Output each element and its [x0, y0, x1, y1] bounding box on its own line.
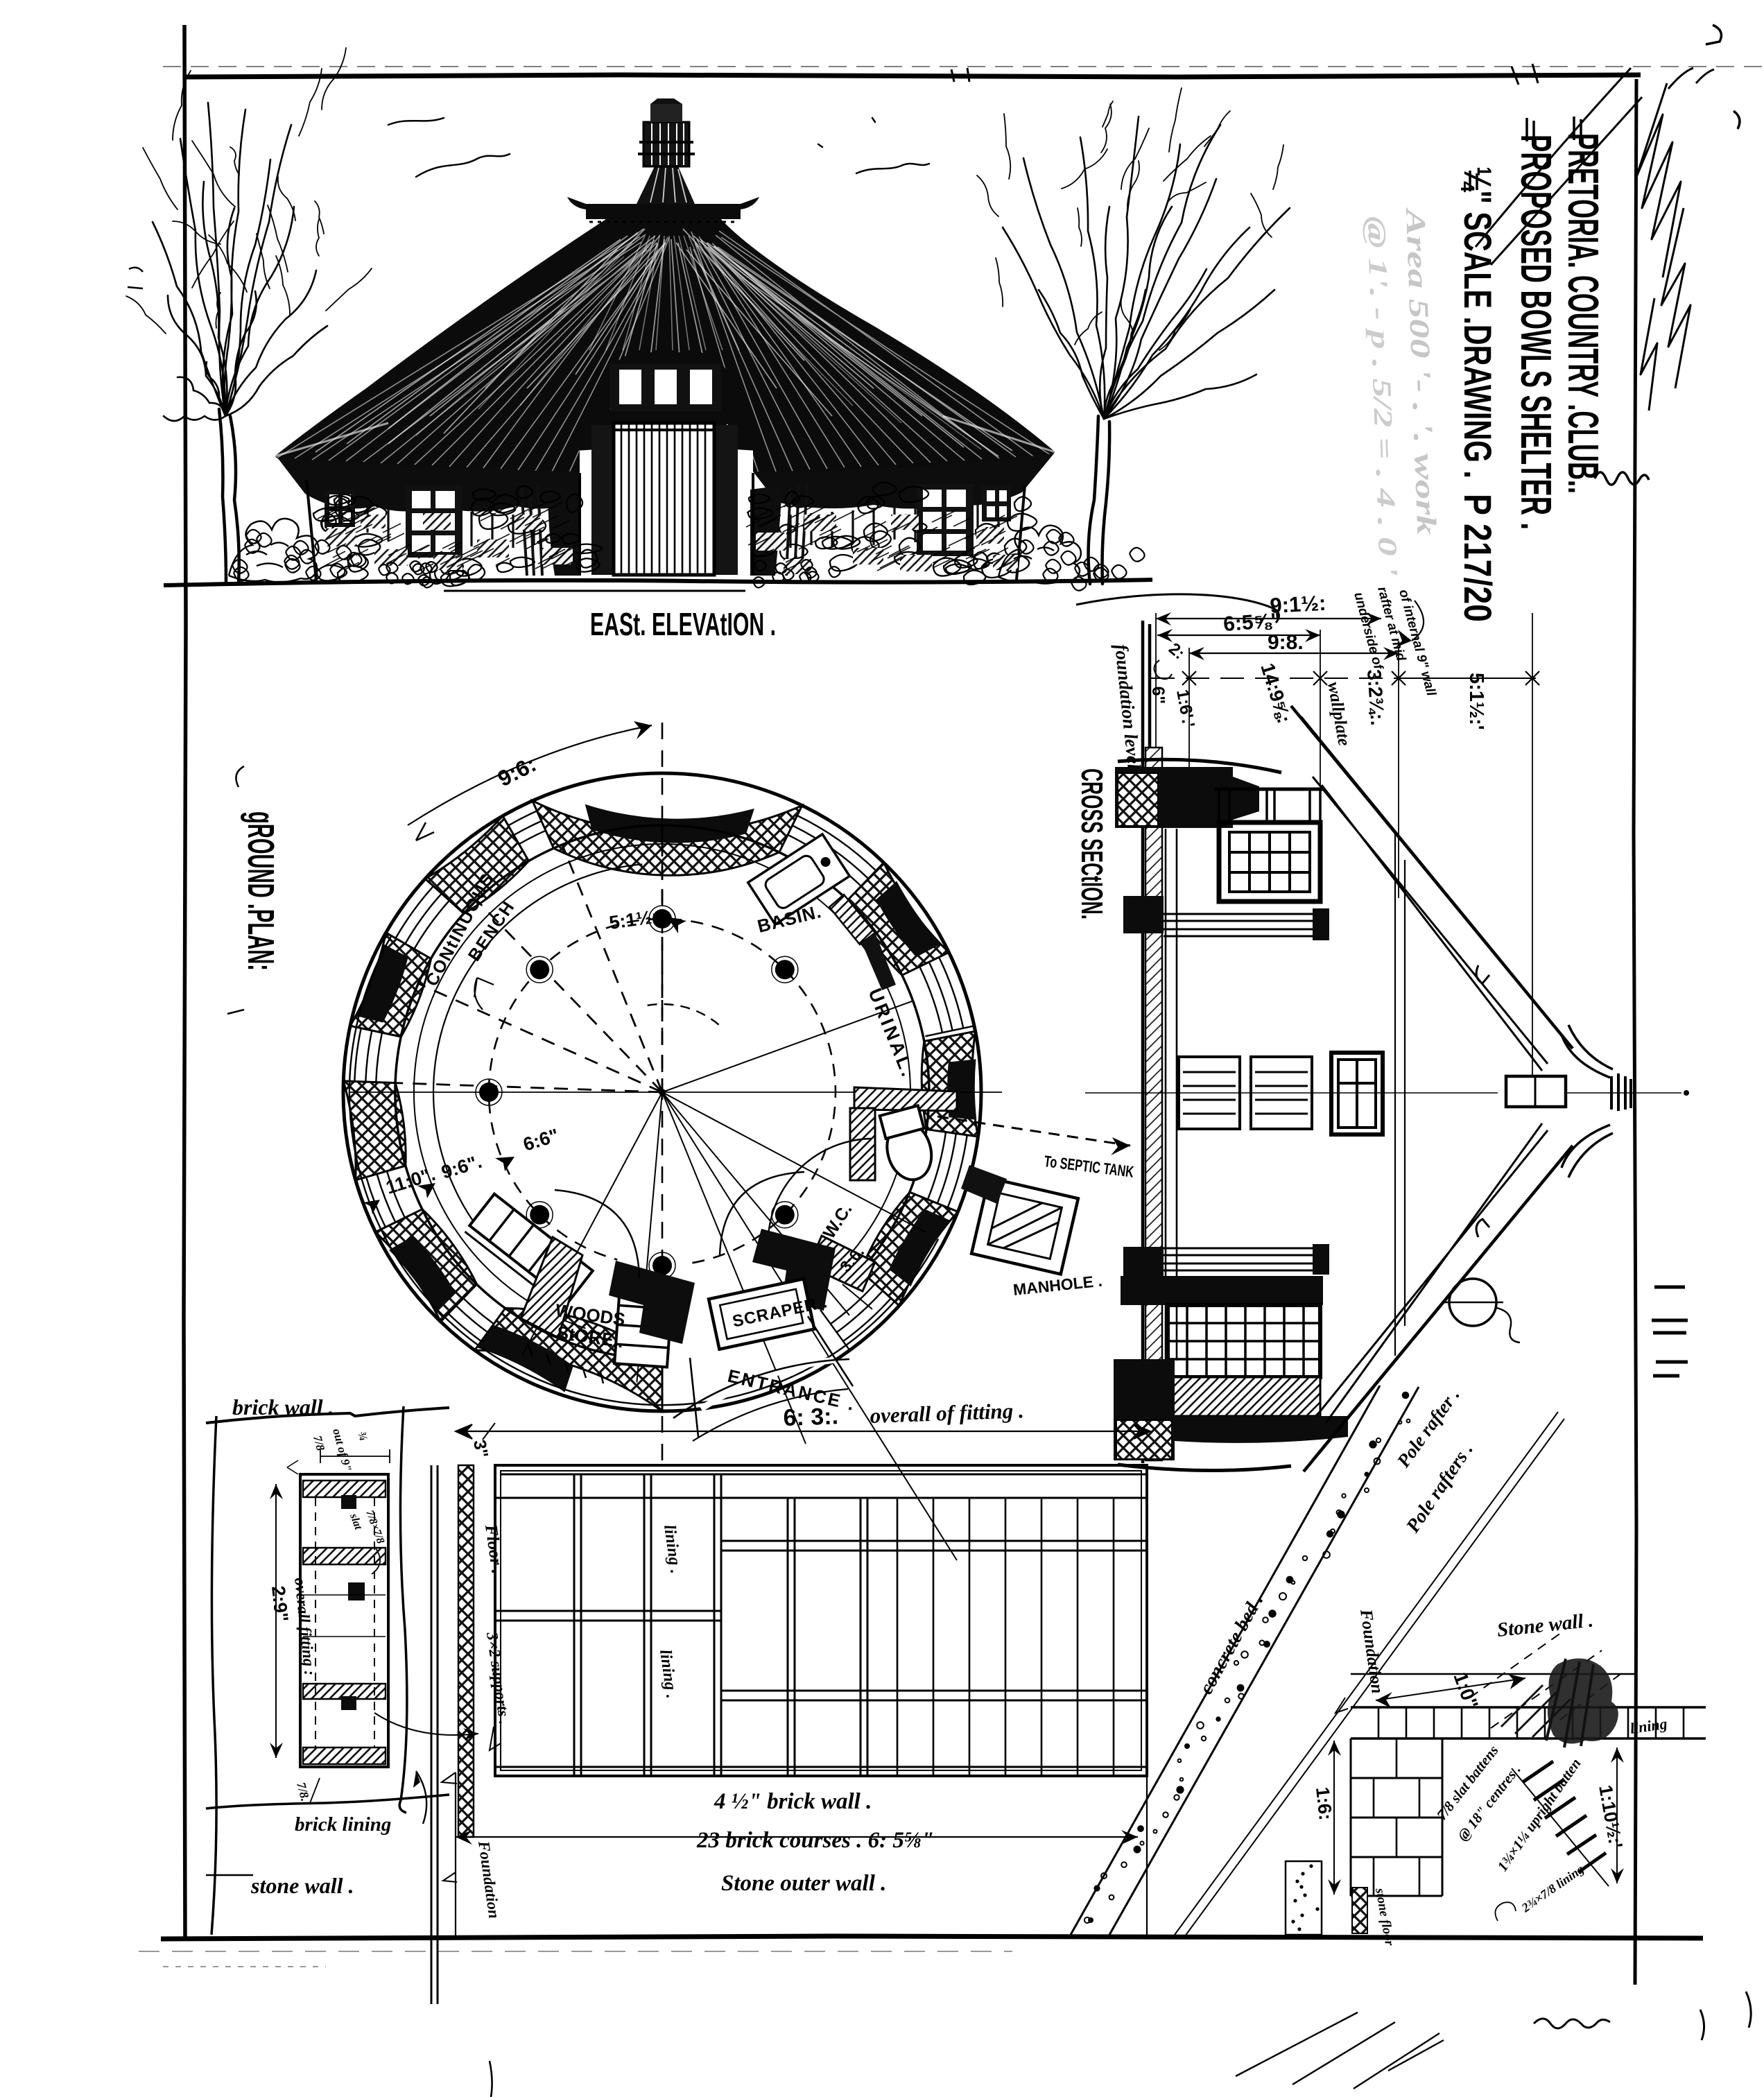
svg-text:stone wall .: stone wall .: [250, 1873, 354, 1898]
svg-text:¼" SCALE .DRAWING .: ¼" SCALE .DRAWING .: [1456, 166, 1500, 478]
svg-text:2:9": 2:9": [268, 1585, 292, 1623]
svg-text:5:1½:': 5:1½:': [1465, 673, 1487, 730]
svg-text:3:2¾:.: 3:2¾:.: [1363, 668, 1389, 726]
svg-text:9:8.: 9:8.: [1268, 631, 1304, 654]
svg-text:1:6:: 1:6:: [1312, 1786, 1336, 1821]
svg-text:6": 6": [1148, 686, 1168, 705]
svg-text:23 brick courses . 6: 5⅝": 23 brick courses . 6: 5⅝": [696, 1828, 934, 1853]
svg-text:brick lining: brick lining: [295, 1813, 391, 1836]
svg-text:gROUND .PLAN:: gROUND .PLAN:: [240, 811, 282, 971]
svg-text:P 217/20: P 217/20: [1456, 494, 1500, 622]
svg-text:Stone outer wall .: Stone outer wall .: [721, 1871, 886, 1896]
svg-text:3": 3": [469, 1438, 492, 1459]
svg-text:6: 3:.: 6: 3:.: [783, 1403, 839, 1431]
svg-text:4 ½" brick wall .: 4 ½" brick wall .: [714, 1789, 872, 1814]
svg-text:CROSS SECtION.: CROSS SECtION.: [1075, 768, 1109, 920]
svg-text:EASt. ELEVAtION .: EASt. ELEVAtION .: [590, 606, 776, 642]
svg-text:PRETORIA. COUNTRY .CLUB..: PRETORIA. COUNTRY .CLUB..: [1559, 133, 1607, 494]
